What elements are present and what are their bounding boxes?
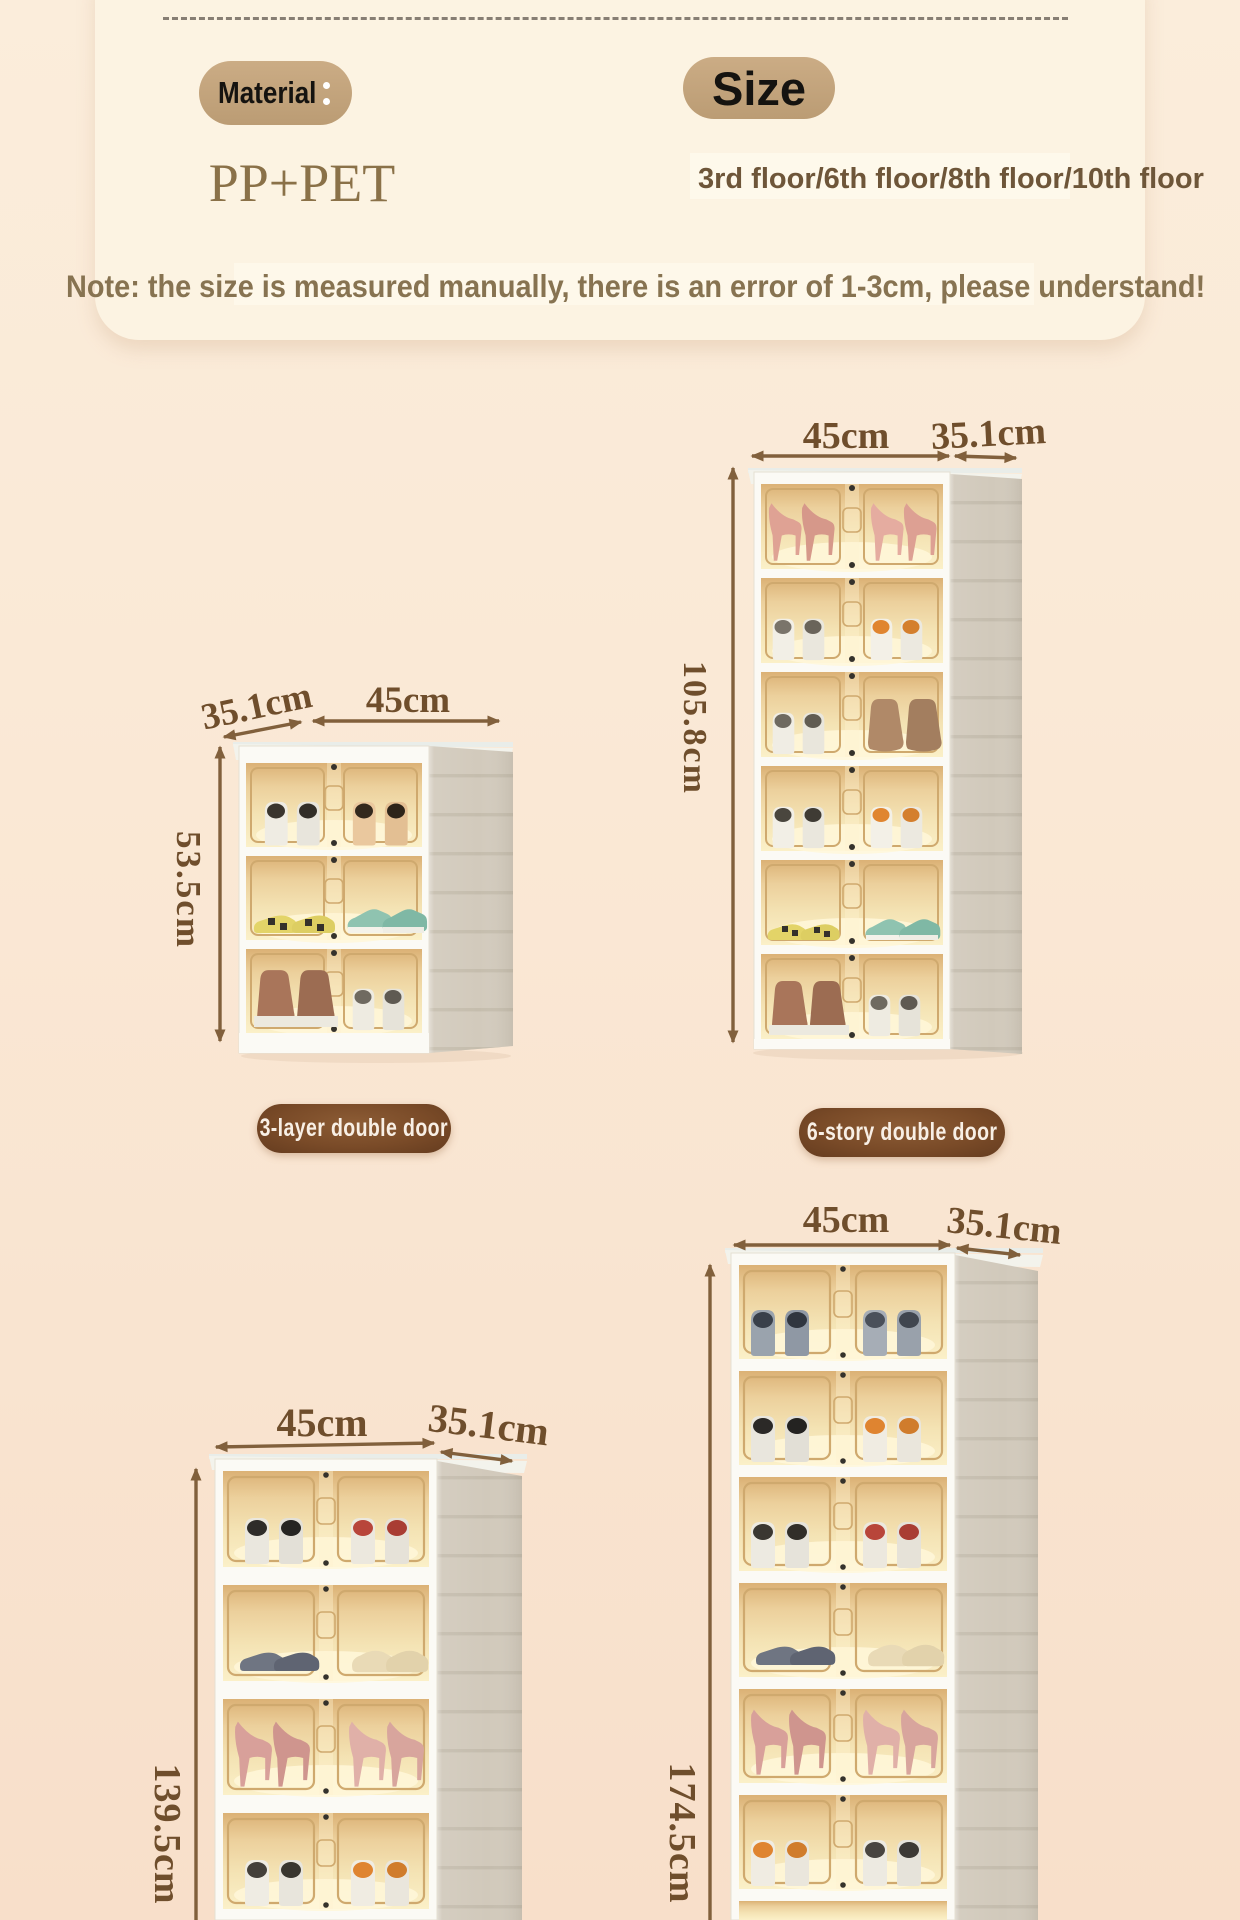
svg-text:174.5cm: 174.5cm: [661, 1762, 703, 1903]
svg-text:45cm: 45cm: [803, 1199, 890, 1241]
svg-text:35.1cm: 35.1cm: [945, 1199, 1064, 1253]
svg-text:53.5cm: 53.5cm: [169, 831, 208, 949]
svg-text:139.5cm: 139.5cm: [146, 1763, 188, 1904]
svg-text:45cm: 45cm: [803, 415, 890, 457]
svg-text:105.8cm: 105.8cm: [676, 661, 713, 795]
svg-text:35.1cm: 35.1cm: [930, 410, 1047, 458]
svg-text:45cm: 45cm: [366, 680, 450, 721]
svg-text:35.1cm: 35.1cm: [426, 1395, 552, 1454]
svg-text:45cm: 45cm: [276, 1400, 367, 1445]
